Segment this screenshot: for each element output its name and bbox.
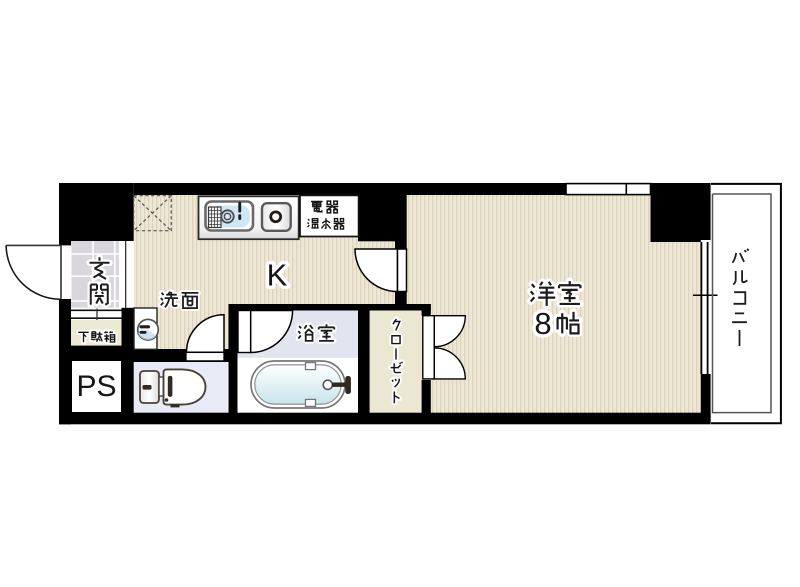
svg-text:8: 8 — [534, 306, 551, 341]
svg-text:PS: PS — [76, 370, 116, 403]
svg-text:K: K — [267, 258, 288, 293]
